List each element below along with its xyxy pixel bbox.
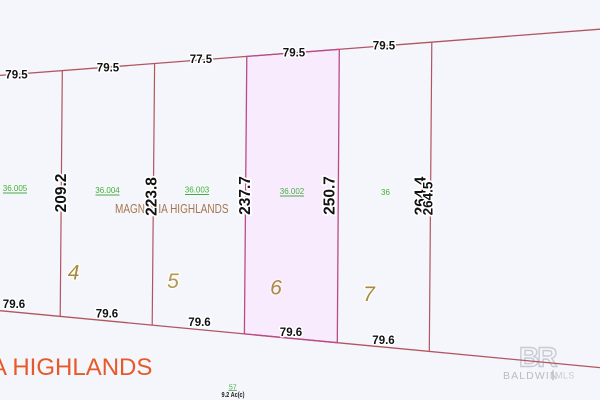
svg-text:36.003: 36.003 xyxy=(185,186,210,195)
svg-text:9.2 Ac(c): 9.2 Ac(c) xyxy=(222,392,245,399)
svg-text:36.004: 36.004 xyxy=(95,186,120,195)
svg-text:223.8: 223.8 xyxy=(144,177,161,216)
svg-text:36: 36 xyxy=(381,188,390,197)
svg-text:79.6: 79.6 xyxy=(280,327,302,339)
svg-text:79.5: 79.5 xyxy=(97,62,120,74)
svg-text:36.005: 36.005 xyxy=(3,184,28,193)
svg-text:79.6: 79.6 xyxy=(188,317,210,329)
svg-text:6: 6 xyxy=(270,277,282,300)
svg-text:209.2: 209.2 xyxy=(53,174,70,213)
svg-text:36.002: 36.002 xyxy=(280,187,305,196)
svg-text:79.6: 79.6 xyxy=(3,299,25,311)
svg-text:BALDWIN: BALDWIN xyxy=(503,370,559,382)
svg-text:79.6: 79.6 xyxy=(372,335,394,347)
svg-text:79.6: 79.6 xyxy=(96,308,118,320)
svg-text:BR: BR xyxy=(519,342,557,373)
svg-text:250.7: 250.7 xyxy=(322,176,339,215)
svg-text:237.7: 237.7 xyxy=(237,176,254,215)
svg-text:77.5: 77.5 xyxy=(190,54,213,66)
svg-text:79.5: 79.5 xyxy=(5,69,28,81)
svg-text:79.5: 79.5 xyxy=(283,47,306,59)
svg-text:7: 7 xyxy=(363,283,376,306)
svg-text:264.5: 264.5 xyxy=(421,181,436,215)
svg-text:4: 4 xyxy=(68,262,80,285)
svg-text:MAGNOLIA HIGHLANDS: MAGNOLIA HIGHLANDS xyxy=(115,201,229,216)
svg-text:MLS: MLS xyxy=(555,371,575,381)
svg-text:A HIGHLANDS: A HIGHLANDS xyxy=(0,354,152,381)
svg-text:5: 5 xyxy=(167,270,179,293)
svg-text:79.5: 79.5 xyxy=(373,41,396,53)
